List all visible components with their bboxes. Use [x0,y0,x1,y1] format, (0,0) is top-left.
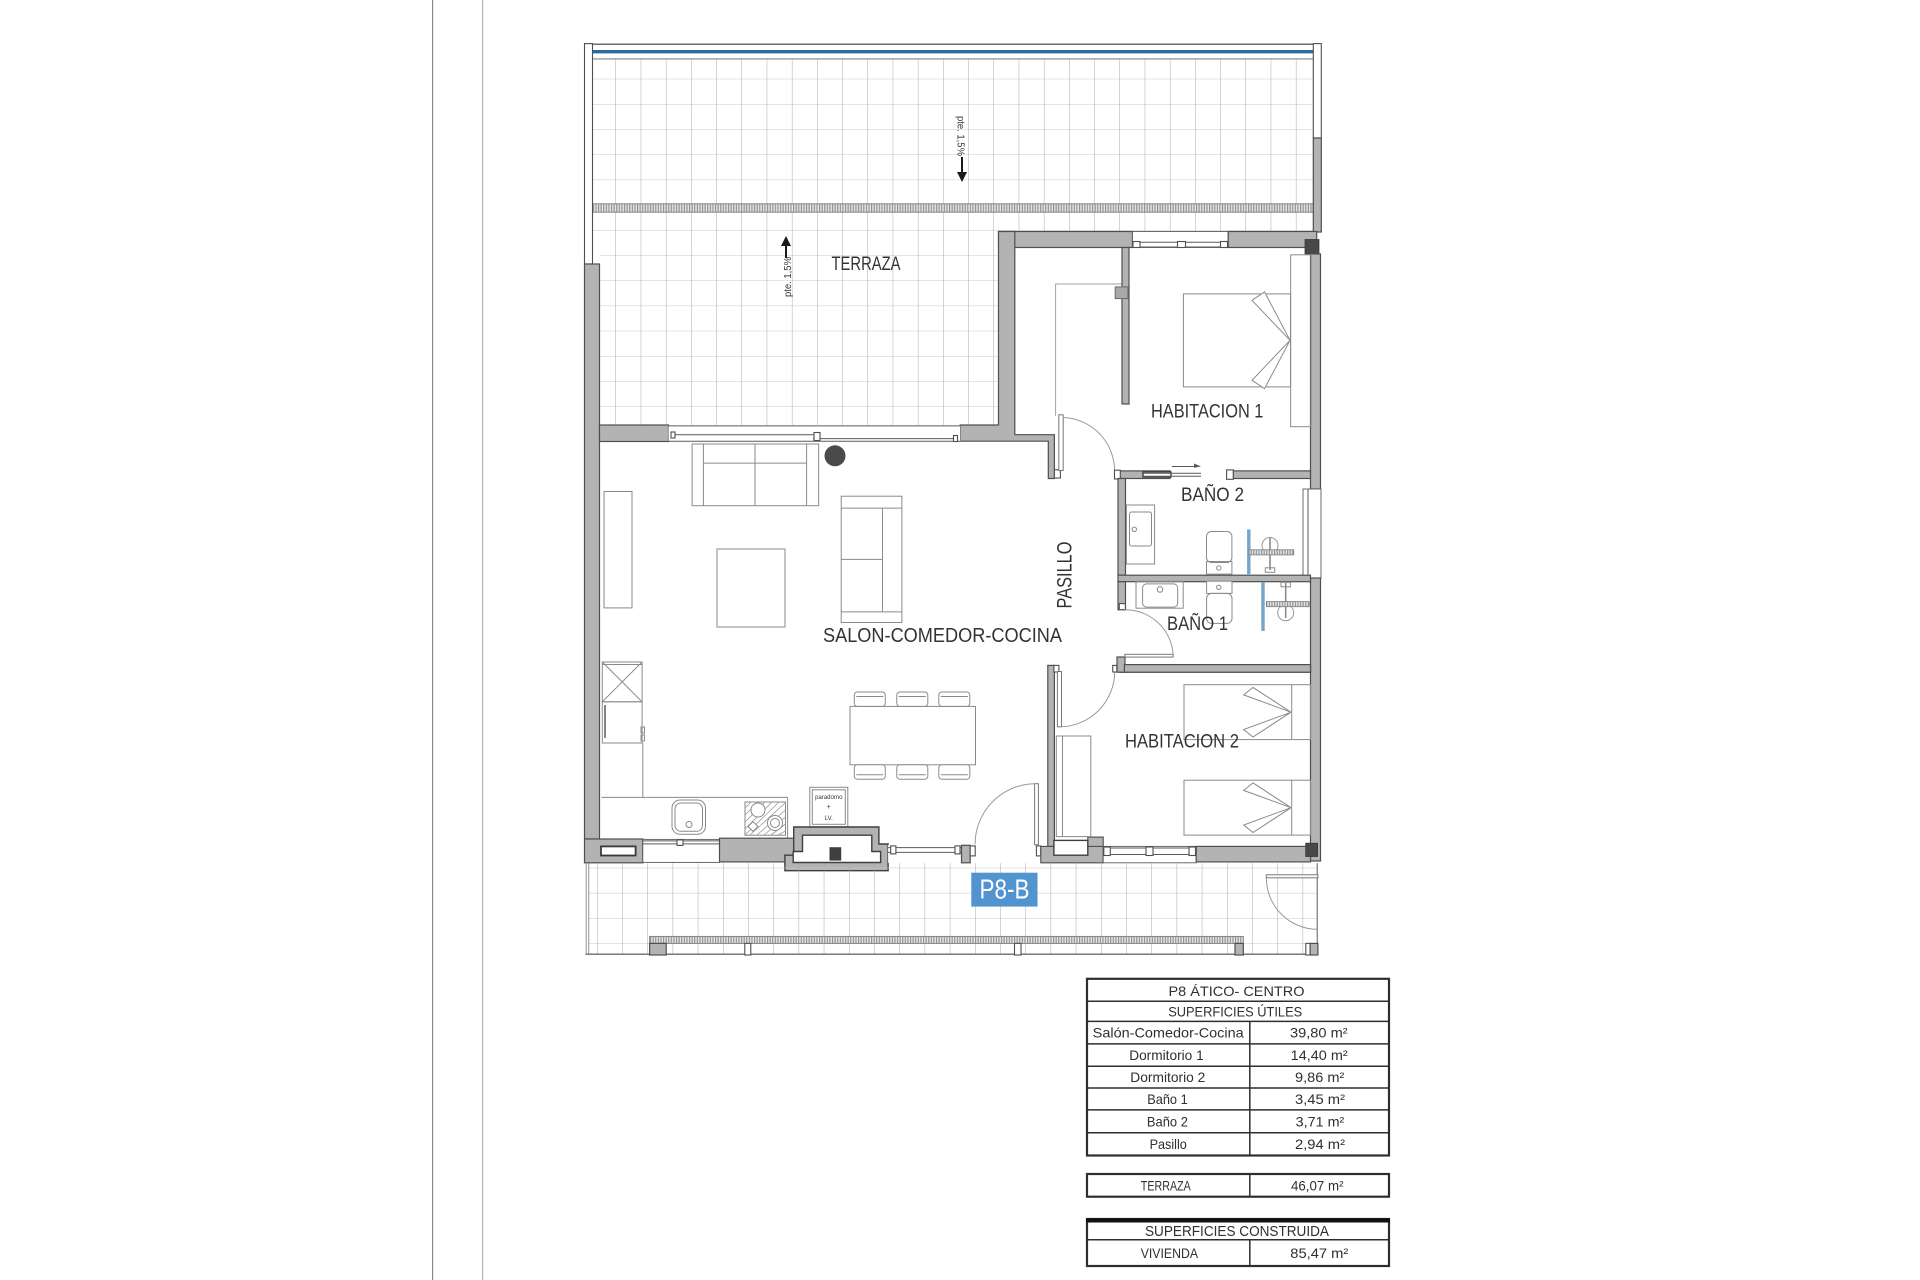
svg-text:SUPERFICIES CONSTRUIDA: SUPERFICIES CONSTRUIDA [1145,1224,1329,1240]
svg-text:SALON-COMEDOR-COCINA: SALON-COMEDOR-COCINA [823,625,1063,647]
svg-text:HABITACION 1: HABITACION 1 [1151,402,1263,423]
svg-text:Baño 2: Baño 2 [1147,1113,1188,1129]
svg-text:PASILLO: PASILLO [1054,542,1077,609]
svg-text:TERRAZA: TERRAZA [832,254,901,275]
svg-text:14,40 m²: 14,40 m² [1291,1047,1348,1063]
svg-text:P8-B: P8-B [980,874,1030,905]
svg-text:Pasillo: Pasillo [1150,1136,1187,1152]
svg-text:Baño 1: Baño 1 [1147,1091,1188,1107]
svg-text:46,07 m²: 46,07 m² [1291,1177,1344,1193]
svg-text:9,86 m²: 9,86 m² [1295,1069,1345,1085]
svg-text:BAÑO 2: BAÑO 2 [1181,484,1244,506]
svg-text:BAÑO 1: BAÑO 1 [1167,613,1228,635]
svg-text:SUPERFICIES ÚTILES: SUPERFICIES ÚTILES [1168,1003,1302,1019]
svg-text:2,94 m²: 2,94 m² [1295,1136,1345,1152]
svg-text:LV.: LV. [825,816,833,822]
svg-text:39,80 m²: 39,80 m² [1290,1025,1348,1041]
svg-text:3,45 m²: 3,45 m² [1295,1091,1345,1107]
svg-text:paradorno: paradorno [815,795,843,801]
svg-text:VIVIENDA: VIVIENDA [1141,1245,1199,1261]
svg-text:TERRAZA: TERRAZA [1141,1177,1192,1193]
svg-text:85,47 m²: 85,47 m² [1290,1245,1348,1261]
svg-text:P8 ÁTICO- CENTRO: P8 ÁTICO- CENTRO [1169,983,1305,999]
svg-text:Dormitorio 1: Dormitorio 1 [1129,1047,1204,1063]
svg-text:3,71 m²: 3,71 m² [1296,1113,1345,1129]
svg-text:pte. 1,5%: pte. 1,5% [955,116,967,156]
svg-text:Salón-Comedor-Cocina: Salón-Comedor-Cocina [1093,1025,1244,1041]
svg-text:HABITACION 2: HABITACION 2 [1125,732,1239,753]
svg-text:pte. 1,5%: pte. 1,5% [782,257,794,297]
svg-text:Dormitorio 2: Dormitorio 2 [1130,1069,1205,1085]
svg-text:+: + [827,804,831,811]
